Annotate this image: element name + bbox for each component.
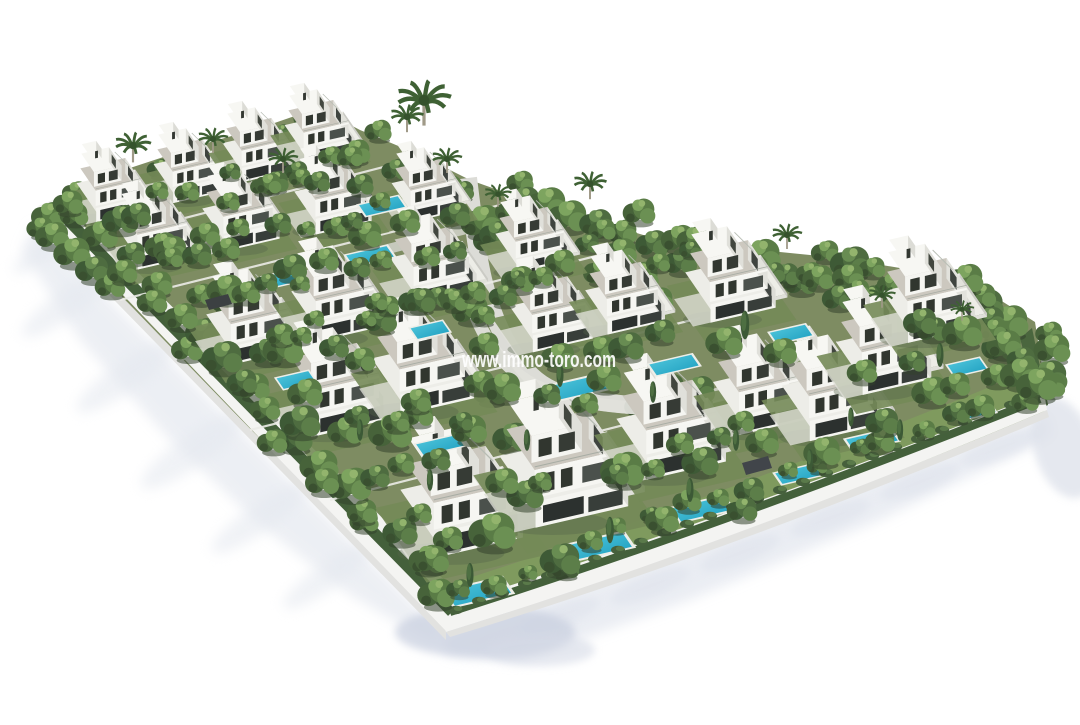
- svg-text:www.immo-toro.com: www.immo-toro.com: [461, 347, 616, 372]
